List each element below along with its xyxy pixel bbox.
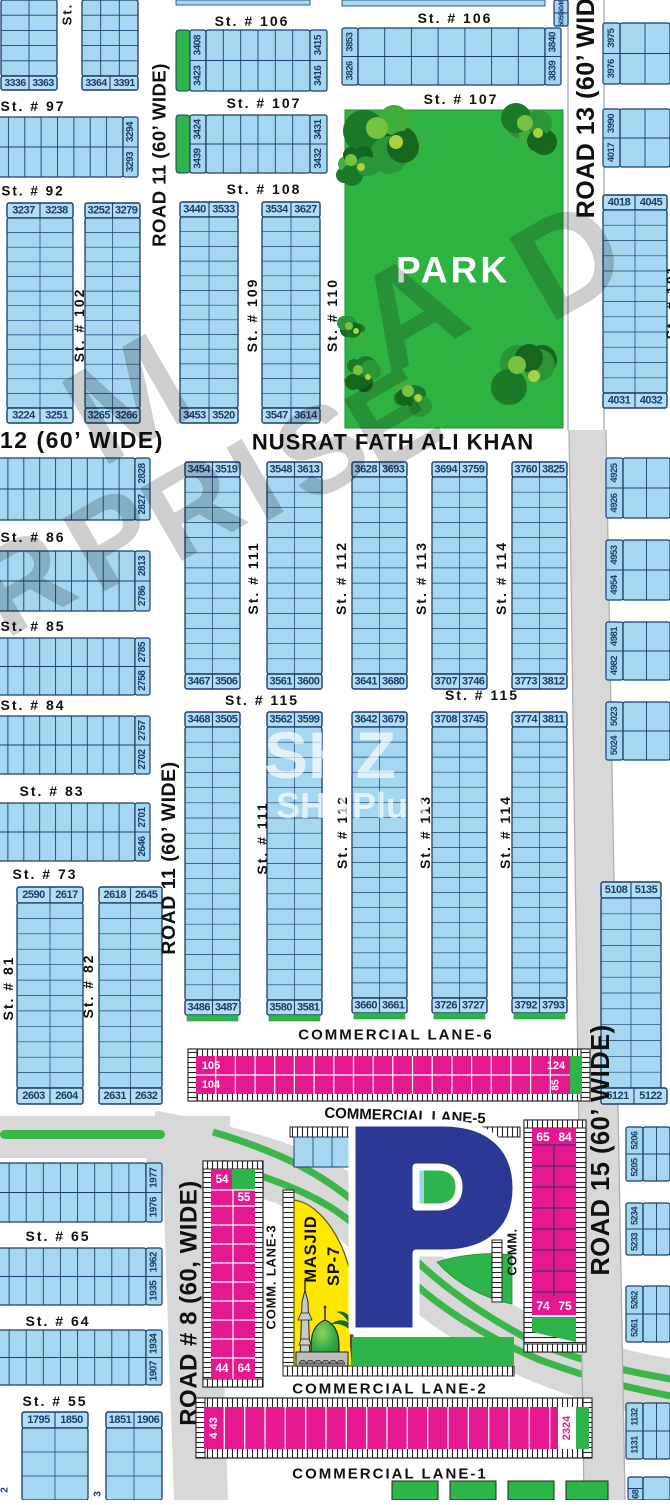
- svg-text:St. # 108: St. # 108: [227, 181, 302, 197]
- svg-text:ROAD 11 (60’ WIDE): ROAD 11 (60’ WIDE): [149, 63, 170, 247]
- svg-text:2646: 2646: [137, 835, 148, 856]
- svg-text:68: 68: [631, 1489, 641, 1499]
- svg-text:124: 124: [547, 1060, 566, 1072]
- svg-text:3975: 3975: [606, 27, 617, 47]
- svg-text:St. # 92: St. # 92: [1, 184, 64, 199]
- svg-text:2631: 2631: [104, 1090, 127, 1102]
- svg-text:COMMERCIAL LANE-1: COMMERCIAL LANE-1: [292, 1466, 487, 1483]
- svg-text:5024: 5024: [609, 735, 620, 755]
- svg-text:75: 75: [558, 1299, 572, 1313]
- svg-text:2324: 2324: [561, 1415, 573, 1440]
- svg-text:2701: 2701: [137, 806, 148, 827]
- svg-text:St.: St.: [60, 3, 75, 26]
- svg-text:3774: 3774: [515, 714, 539, 726]
- svg-text:5233: 5233: [630, 1232, 640, 1251]
- svg-text:3534: 3534: [265, 204, 289, 216]
- svg-text:3424: 3424: [193, 118, 204, 139]
- svg-text:2: 2: [0, 1487, 11, 1493]
- svg-text:St. # 81: St. # 81: [0, 955, 16, 1020]
- svg-text:2603: 2603: [22, 1090, 45, 1102]
- svg-text:3237: 3237: [12, 205, 35, 217]
- svg-text:105: 105: [202, 1060, 220, 1072]
- svg-text:St. # 113: St. # 113: [413, 541, 429, 615]
- svg-text:44: 44: [216, 1363, 229, 1375]
- svg-text:54: 54: [216, 1174, 229, 1186]
- svg-text:55: 55: [238, 1192, 251, 1204]
- svg-text:3680: 3680: [382, 676, 405, 688]
- svg-text:2617: 2617: [55, 889, 78, 901]
- svg-text:3: 3: [93, 1491, 104, 1497]
- svg-text:COMM.: COMM.: [505, 1228, 520, 1275]
- svg-text:4954: 4954: [609, 574, 620, 594]
- svg-text:3627: 3627: [294, 204, 317, 216]
- svg-text:3487: 3487: [215, 1002, 238, 1014]
- svg-text:St. # 55: St. # 55: [22, 1393, 87, 1409]
- svg-text:84: 84: [558, 1130, 572, 1144]
- svg-text:3600: 3600: [297, 676, 320, 688]
- svg-text:4953: 4953: [609, 545, 620, 564]
- svg-text:3812: 3812: [542, 676, 565, 688]
- svg-text:St. # 107: St. # 107: [424, 91, 499, 107]
- svg-text:5205: 5205: [630, 1158, 640, 1177]
- svg-text:3840: 3840: [548, 31, 559, 52]
- svg-text:4 43: 4 43: [208, 1417, 220, 1438]
- svg-text:3825: 3825: [542, 464, 565, 476]
- svg-text:3364: 3364: [85, 77, 107, 89]
- svg-text:COMMERCIAL LANE-2: COMMERCIAL LANE-2: [292, 1381, 487, 1398]
- svg-text:2645: 2645: [135, 889, 158, 901]
- svg-text:3580: 3580: [270, 1002, 293, 1014]
- svg-text:1850: 1850: [60, 1414, 83, 1426]
- svg-text:3707: 3707: [435, 676, 458, 688]
- svg-text:64: 64: [238, 1363, 251, 1375]
- svg-text:St. # 73: St. # 73: [12, 866, 77, 882]
- svg-text:3746: 3746: [462, 676, 485, 688]
- svg-text:74: 74: [536, 1299, 550, 1313]
- svg-text:5135: 5135: [635, 884, 658, 896]
- svg-text:5046: 5046: [557, 0, 566, 14]
- svg-text:3423: 3423: [193, 65, 204, 86]
- svg-text:3661: 3661: [382, 1000, 405, 1012]
- svg-text:3660: 3660: [355, 1000, 378, 1012]
- svg-text:3641: 3641: [355, 676, 378, 688]
- svg-text:3792: 3792: [515, 1000, 538, 1012]
- svg-text:3251: 3251: [45, 410, 68, 422]
- svg-text:2590: 2590: [22, 889, 45, 901]
- svg-text:St. # 84: St. # 84: [0, 697, 65, 713]
- svg-text:3391: 3391: [113, 77, 135, 89]
- svg-text:1934: 1934: [149, 1333, 160, 1354]
- svg-text:1795: 1795: [27, 1414, 50, 1426]
- svg-text:MASJID: MASJID: [302, 1215, 320, 1282]
- svg-text:4925: 4925: [609, 462, 620, 482]
- svg-text:SHAPlus: SHAPlus: [276, 785, 428, 826]
- svg-text:1131: 1131: [630, 1436, 640, 1454]
- svg-text:2758: 2758: [137, 670, 148, 691]
- svg-text:3826: 3826: [345, 61, 356, 80]
- svg-text:4018: 4018: [608, 197, 631, 209]
- svg-text:1935: 1935: [149, 1280, 160, 1301]
- svg-text:1906: 1906: [137, 1414, 160, 1426]
- svg-text:3726: 3726: [435, 1000, 458, 1012]
- svg-text:St. # 82: St. # 82: [80, 953, 96, 1018]
- svg-text:3279: 3279: [115, 205, 138, 217]
- svg-text:1907: 1907: [149, 1360, 160, 1381]
- svg-text:1976: 1976: [149, 1196, 160, 1217]
- svg-text:3990: 3990: [606, 114, 617, 133]
- svg-text:4045: 4045: [640, 197, 663, 209]
- svg-text:3432: 3432: [313, 147, 324, 168]
- svg-text:St. # 101: St. # 101: [663, 265, 670, 340]
- svg-text:3486: 3486: [188, 1002, 211, 1014]
- svg-text:St. # 65: St. # 65: [25, 1228, 90, 1244]
- svg-text:5234: 5234: [630, 1206, 640, 1225]
- svg-text:3336: 3336: [4, 77, 26, 89]
- svg-text:3440: 3440: [183, 204, 206, 216]
- svg-text:ROAD 11 (60’ WIDE): ROAD 11 (60’ WIDE): [158, 761, 180, 954]
- svg-text:SP-7: SP-7: [325, 1246, 343, 1286]
- svg-text:St. # 97: St. # 97: [0, 98, 65, 114]
- svg-text:St. # 114: St. # 114: [497, 795, 513, 869]
- svg-text:4017: 4017: [606, 143, 617, 162]
- svg-text:3415: 3415: [313, 34, 324, 55]
- svg-text:St. # 112: St. # 112: [333, 541, 349, 615]
- svg-text:3745: 3745: [462, 714, 485, 726]
- svg-text:3416: 3416: [313, 65, 324, 86]
- svg-text:ROAD # 8 (60, WIDE): ROAD # 8 (60, WIDE): [176, 1180, 203, 1426]
- svg-text:3467: 3467: [188, 676, 211, 688]
- svg-text:3839: 3839: [548, 60, 559, 81]
- svg-text:3294: 3294: [125, 121, 136, 142]
- svg-text:1962: 1962: [149, 1251, 160, 1272]
- svg-text:3727: 3727: [462, 1000, 485, 1012]
- svg-text:St. # 64: St. # 64: [25, 1313, 90, 1329]
- svg-text:5261: 5261: [630, 1318, 640, 1337]
- svg-text:4982: 4982: [609, 656, 620, 675]
- svg-text:3468: 3468: [188, 714, 211, 726]
- svg-text:2632: 2632: [135, 1090, 158, 1102]
- svg-text:5262: 5262: [630, 1290, 640, 1309]
- svg-text:104: 104: [202, 1079, 221, 1091]
- svg-text:COMMERCIAL LANE-6: COMMERCIAL LANE-6: [298, 1027, 493, 1044]
- svg-text:5023: 5023: [609, 707, 620, 726]
- svg-text:4981: 4981: [609, 626, 620, 646]
- svg-text:3811: 3811: [542, 714, 564, 726]
- svg-text:65: 65: [536, 1130, 550, 1144]
- svg-text:3506: 3506: [215, 676, 238, 688]
- svg-text:2702: 2702: [137, 748, 148, 769]
- svg-text:3238: 3238: [45, 205, 68, 217]
- svg-text:St. # 111: St. # 111: [254, 801, 270, 874]
- svg-text:2785: 2785: [137, 641, 148, 662]
- svg-text:5122: 5122: [639, 1090, 662, 1102]
- svg-text:5206: 5206: [630, 1131, 640, 1150]
- svg-text:St. # 83: St. # 83: [19, 783, 84, 799]
- svg-text:St. # 106: St. # 106: [418, 10, 493, 26]
- svg-text:3976: 3976: [606, 59, 617, 78]
- svg-text:2757: 2757: [137, 719, 148, 740]
- svg-text:St. # 107: St. # 107: [227, 95, 302, 111]
- svg-text:3431: 3431: [313, 118, 324, 139]
- svg-text:3533: 3533: [212, 204, 235, 216]
- svg-text:4032: 4032: [640, 395, 663, 407]
- svg-text:3293: 3293: [125, 151, 136, 172]
- svg-text:ROAD 15 (60’ WIDE): ROAD 15 (60’ WIDE): [587, 1024, 615, 1275]
- svg-text:5108: 5108: [605, 884, 628, 896]
- svg-text:4926: 4926: [609, 493, 620, 512]
- svg-text:3853: 3853: [345, 32, 356, 51]
- svg-text:SHZ: SHZ: [264, 718, 396, 792]
- svg-text:3773: 3773: [515, 676, 538, 688]
- svg-text:85: 85: [551, 1079, 562, 1091]
- svg-text:2618: 2618: [104, 889, 127, 901]
- svg-text:3363: 3363: [32, 77, 54, 89]
- svg-text:St. # 115: St. # 115: [445, 687, 519, 703]
- svg-text:3224: 3224: [12, 410, 36, 422]
- svg-text:3581: 3581: [297, 1002, 320, 1014]
- svg-text:St. # 114: St. # 114: [493, 541, 509, 615]
- svg-text:3759: 3759: [462, 464, 485, 476]
- svg-text:3793: 3793: [542, 1000, 565, 1012]
- svg-text:2604: 2604: [55, 1090, 79, 1102]
- svg-text:1132: 1132: [630, 1408, 640, 1426]
- svg-text:3505: 3505: [215, 714, 238, 726]
- svg-text:St. # 109: St. # 109: [244, 278, 260, 353]
- svg-text:3760: 3760: [515, 464, 538, 476]
- svg-text:1977: 1977: [149, 1167, 160, 1188]
- svg-text:COMM. LANE-3: COMM. LANE-3: [264, 1225, 279, 1330]
- svg-text:St. # 115: St. # 115: [225, 692, 299, 708]
- svg-text:3561: 3561: [270, 676, 293, 688]
- svg-text:3408: 3408: [193, 34, 204, 55]
- svg-text:3708: 3708: [435, 714, 458, 726]
- svg-text:1851: 1851: [109, 1414, 132, 1426]
- svg-text:3439: 3439: [193, 147, 204, 168]
- svg-text:3252: 3252: [88, 205, 111, 217]
- svg-text:St. # 106: St. # 106: [215, 13, 290, 29]
- svg-text:4031: 4031: [608, 395, 631, 407]
